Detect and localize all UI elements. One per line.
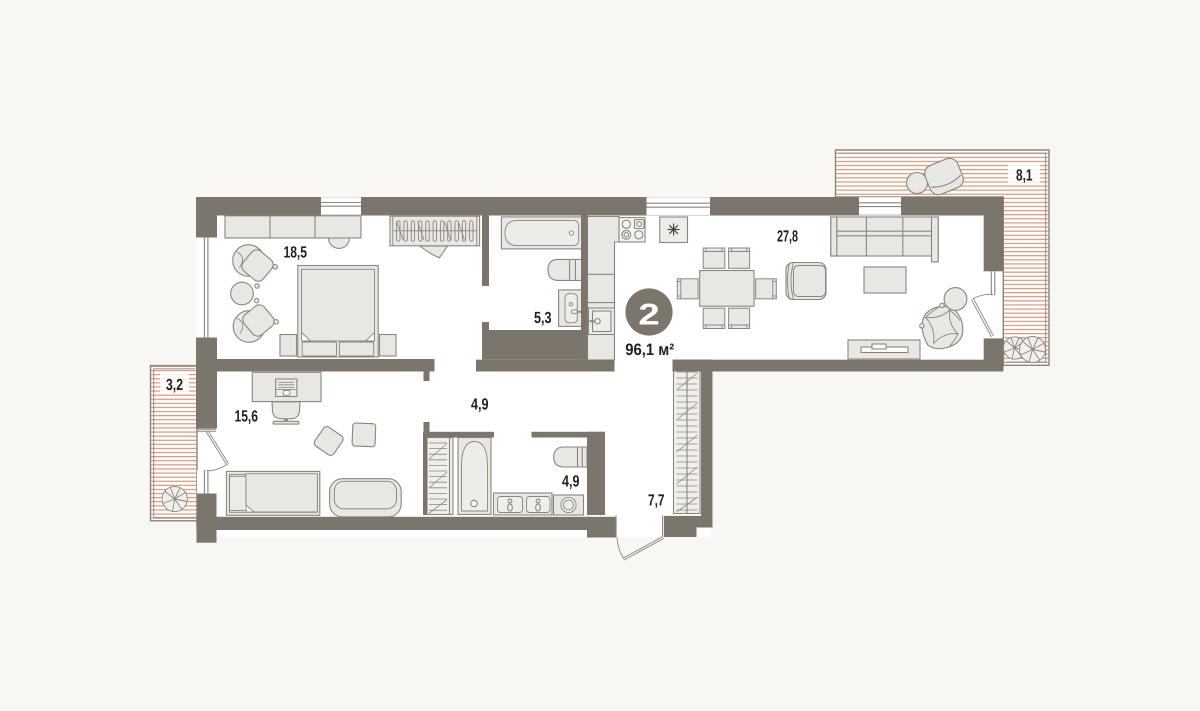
- svg-text:8,1: 8,1: [1016, 167, 1033, 185]
- svg-text:4,9: 4,9: [471, 396, 489, 414]
- svg-text:5,3: 5,3: [534, 309, 552, 327]
- svg-text:2: 2: [638, 299, 660, 332]
- svg-text:7,7: 7,7: [648, 492, 665, 510]
- svg-text:27,8: 27,8: [777, 228, 798, 246]
- svg-text:18,5: 18,5: [284, 244, 308, 262]
- svg-text:4,9: 4,9: [562, 473, 580, 491]
- svg-text:96,1 м²: 96,1 м²: [625, 341, 674, 359]
- svg-text:3,2: 3,2: [166, 376, 183, 394]
- svg-text:15,6: 15,6: [235, 408, 259, 426]
